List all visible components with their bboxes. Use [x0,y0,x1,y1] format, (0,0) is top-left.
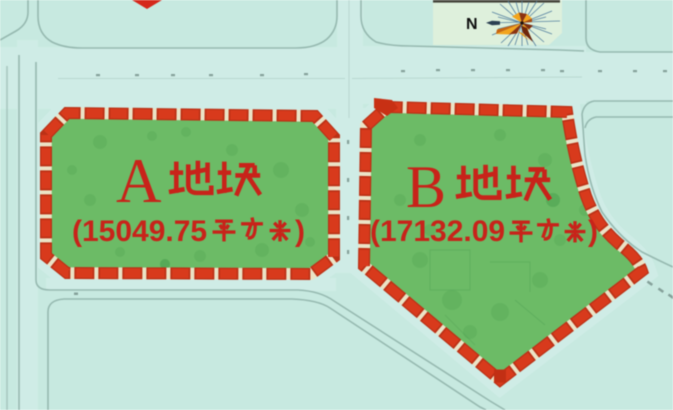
svg-text:B: B [406,154,446,220]
svg-text:A: A [116,146,162,216]
svg-text:): ) [588,215,598,248]
svg-text:(15049.75: (15049.75 [72,215,207,248]
svg-text:): ) [295,215,305,248]
svg-text:(17132.09: (17132.09 [370,215,505,248]
svg-text:N: N [466,16,478,33]
